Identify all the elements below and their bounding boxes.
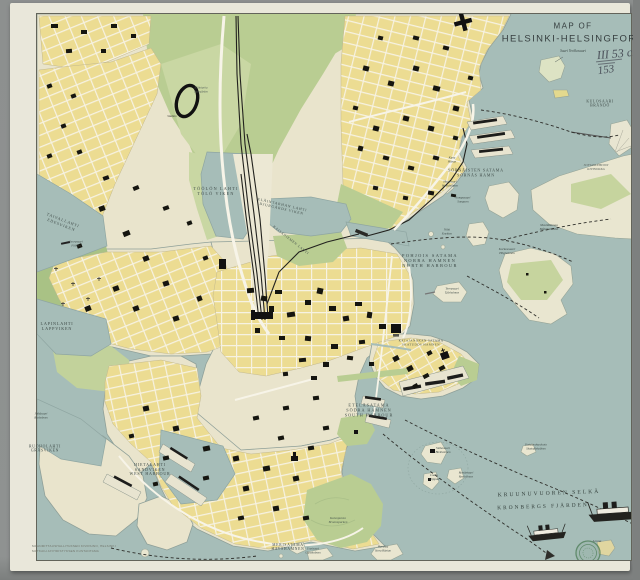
label-ruoholahti: RUOHOLAHTIGRÄSVIKEN [29, 445, 61, 454]
label-toolonlahti: TÖÖLÖN LAHTITÖLÖ VIKEN [193, 187, 238, 197]
label-seurasaari-pier: SeurasaariFölisön [69, 240, 82, 247]
label-kana: KanaHönan [448, 156, 456, 163]
label-valkosaari: ValkosaariBlekholmen [435, 447, 450, 455]
label-harakka: HarakkaStora Räntan [375, 545, 391, 552]
map-title-line1: MAP OF [554, 22, 593, 31]
label-tervasaari: TervasaariTjärholmen [445, 287, 459, 294]
label-kulosaari: KULOSAARIBRÄNDÖ [586, 100, 613, 109]
observatory-icon [354, 430, 358, 434]
label-elaintarha: EläintarhaDjurgården [194, 86, 208, 93]
label-merisatama: MERISATAMAHAVSHAMNEN [271, 543, 304, 551]
scan-background: Suuri VerkkosaariKULOSAARIBRÄNDÖSÖRNÄIST… [0, 0, 640, 580]
label-etelasatama: ETELÄSATAMASÖDRA HAMNENSOUTH HARBOUR [345, 404, 393, 419]
parliament-icon [219, 259, 226, 269]
label-kaivopuisto: KaivopuistoBrunnsparken [329, 517, 348, 525]
label-stadion: Stadion [167, 115, 176, 119]
railway-station-icon [255, 312, 273, 319]
map-title-line2: HELSINKI-HELSINGFORS [502, 34, 640, 45]
label-sornaisten-satama: SÖRNÄISTEN SATAMASÖRNÄS HAMN [448, 168, 504, 177]
imprint-line2: MATKAILIJAYHDISTYKSEN KUSTANTAMA [32, 549, 99, 554]
label-lonna: Lonna [593, 539, 602, 543]
label-hietalahti: HIETALAHTISANDVIKENWEST HARBOUR [130, 463, 171, 477]
label-uunisaari: UunisaariUgnsholmen [305, 547, 320, 554]
label-mustikkamaa: MustikkamaaBlåbärslandet [540, 224, 559, 232]
label-nihti: NihtiKnekten [442, 228, 452, 235]
map-paper [10, 3, 630, 571]
map-graphic [37, 14, 631, 560]
label-jatkasaari: JätkäsaariBusholmen [34, 412, 47, 419]
label-pohjois-satama: POHJOIS SATAMANORRA HAMNENNORTH HARBOUR [402, 253, 458, 269]
label-luoto: LuotoKlippan [429, 474, 439, 482]
label-sompasaari: SompasaariSumparn [456, 196, 471, 203]
label-kivinokka: SOFIANLEHDONKIVINOKKA [584, 164, 609, 172]
cathedral-icon [391, 324, 401, 333]
label-hanasaari: HanasaariHanaholmen [442, 180, 458, 187]
label-katajanokan-satama: KATAJANOKAN SATAMASKATUDDS HAMNEN [399, 339, 444, 346]
label-katajanokanluoto: KatajanokanluotoSkatuddskobben [525, 443, 547, 450]
handwritten-number: 153 [597, 63, 615, 77]
label-ryssansaari: RyssänsaariRyssholmen [459, 471, 474, 478]
label-korkeasaari: KorkeasaariHögholmen [499, 248, 516, 256]
map-area [36, 13, 632, 561]
stamp-icon [576, 541, 600, 560]
label-lapinlahti: LAPINLAHTILAPPVIKEN [41, 322, 74, 332]
label-suuri-verkkosaari: Suuri Verkkosaari [560, 49, 586, 53]
